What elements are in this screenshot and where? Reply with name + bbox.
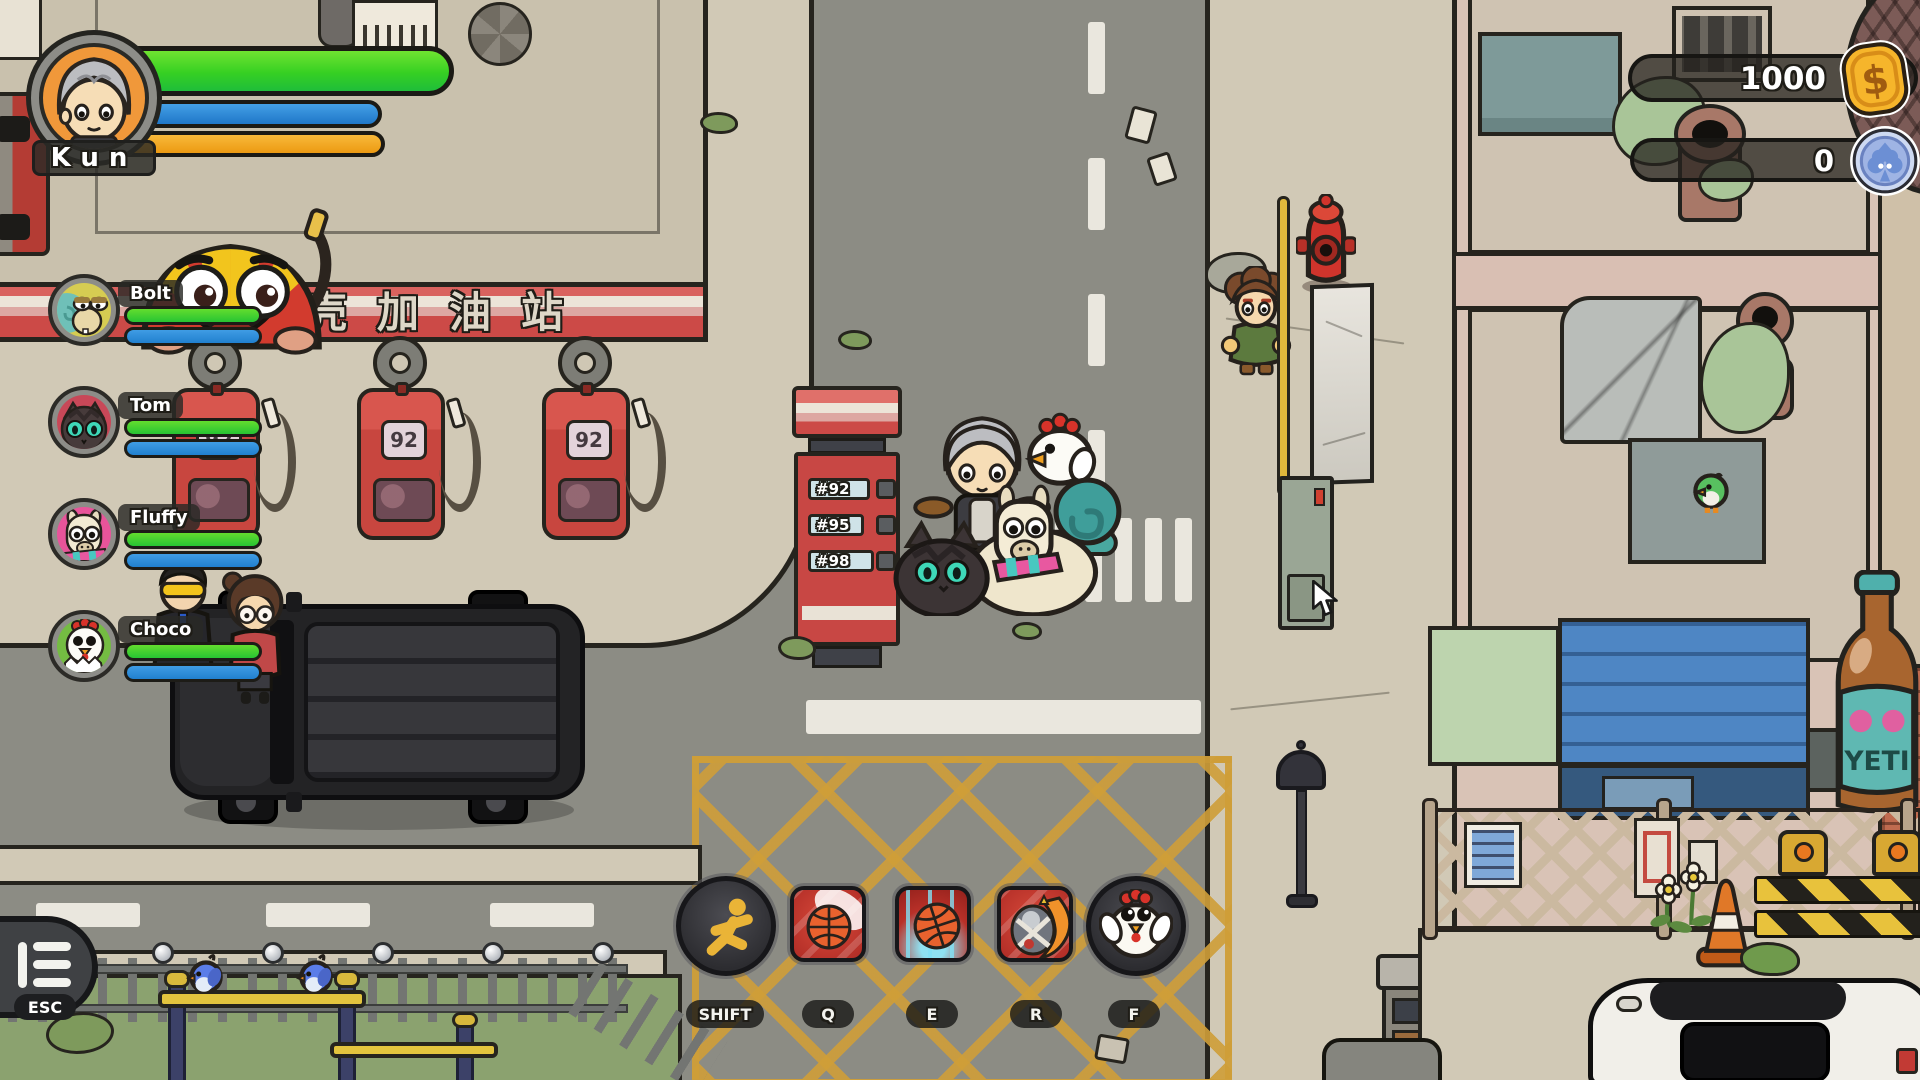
skill-slot-q[interactable] [790,886,866,962]
sprint-icon [693,893,759,959]
blue-bird [186,952,226,996]
post-cap [452,1012,478,1028]
grass-tuft [700,112,738,134]
fence-post [1422,798,1438,940]
lane-dash [1088,294,1105,366]
pump-window [188,478,250,522]
rooftop-slab [1478,32,1622,136]
green-bird [1690,464,1732,514]
warning-light [1778,830,1828,876]
fuel-price-board: #92 #95 #98 [792,386,902,670]
chimney-pipe-top [1674,104,1746,164]
fence-ball-finial [482,942,504,964]
gas-station-awning: 壳壳加油站 [0,282,708,342]
fuel-pump: 92 [542,388,630,540]
basketball-icon [806,904,852,950]
roof-vent-box [0,0,42,60]
pump-octane-plate: 92 [566,420,612,460]
gray-vehicle-corner [1322,1038,1442,1080]
npc-woman [212,568,298,710]
lower-sidewalk-strip [0,845,702,885]
blue-roller-door [1558,618,1810,766]
flowers [1650,860,1712,934]
fence-ball-finial [592,942,614,964]
fuel-pump: 92 [357,388,445,540]
bird-flame-icon [1003,892,1071,960]
grass-sprout [1740,942,1800,976]
skill-slot-r[interactable] [997,886,1073,962]
skill-slot-sprint[interactable] [676,876,776,976]
chicken-icon [1099,889,1173,963]
skylight-grate [1672,6,1772,82]
blue-bird [296,952,336,996]
skill-slot-e[interactable] [895,886,971,962]
player-party-group [893,408,1131,616]
crosswalk-band [806,700,1201,734]
price-row: #98 [808,550,874,572]
lane-dash [1088,158,1105,230]
pullup-bar [330,1042,498,1058]
roof-ac-grille [352,0,438,54]
stone-slab-sign [1310,283,1374,485]
fuel-pump: 92 [172,388,260,540]
pump-octane-plate: 92 [381,420,427,460]
beer-bottle-poster: YETI [1826,570,1920,820]
svg-text:YETI: YETI [1843,746,1909,777]
pump-window [373,478,435,522]
pump-window [558,478,620,522]
basketball-icon [907,896,967,956]
esc-menu-button[interactable]: ESC [0,916,98,1018]
warning-light [1872,830,1920,876]
fire-hydrant [1296,194,1356,294]
fence-ball-finial [262,942,284,964]
esc-label-pill: ESC [14,994,76,1020]
fence-ball-finial [372,942,394,964]
road-dash [490,903,594,927]
pump-octane-plate: 92 [196,420,242,460]
post-cap [334,970,360,988]
road-dash [266,903,370,927]
npc-suit-man [146,556,220,690]
grass-tuft [838,330,872,350]
litter-paper [1124,105,1158,145]
game-viewport: 壳壳加油站 92 92 92 [0,0,1920,1080]
price-row: #95 [808,514,864,536]
lane-dash [1088,22,1105,94]
street-lamp [1274,748,1330,914]
litter-paper [1094,1033,1130,1064]
fence-poster-blue [1464,822,1522,888]
yellow-sign-pole [1277,196,1290,496]
fence-ball-finial [152,942,174,964]
litter-paper [1146,151,1178,187]
utility-box [1278,476,1334,630]
skill-slot-chicken[interactable] [1086,876,1186,976]
storefront-green-panel [1428,626,1560,766]
white-car [1588,978,1920,1080]
shell-mascot [128,194,336,362]
striped-barrier [1754,876,1920,944]
ac-duct [1560,296,1702,444]
grass-tuft [1012,622,1042,640]
price-row: #92 [808,478,870,500]
parked-truck [0,92,50,256]
grass-tuft [778,636,816,660]
roof-fan-icon [468,2,532,66]
